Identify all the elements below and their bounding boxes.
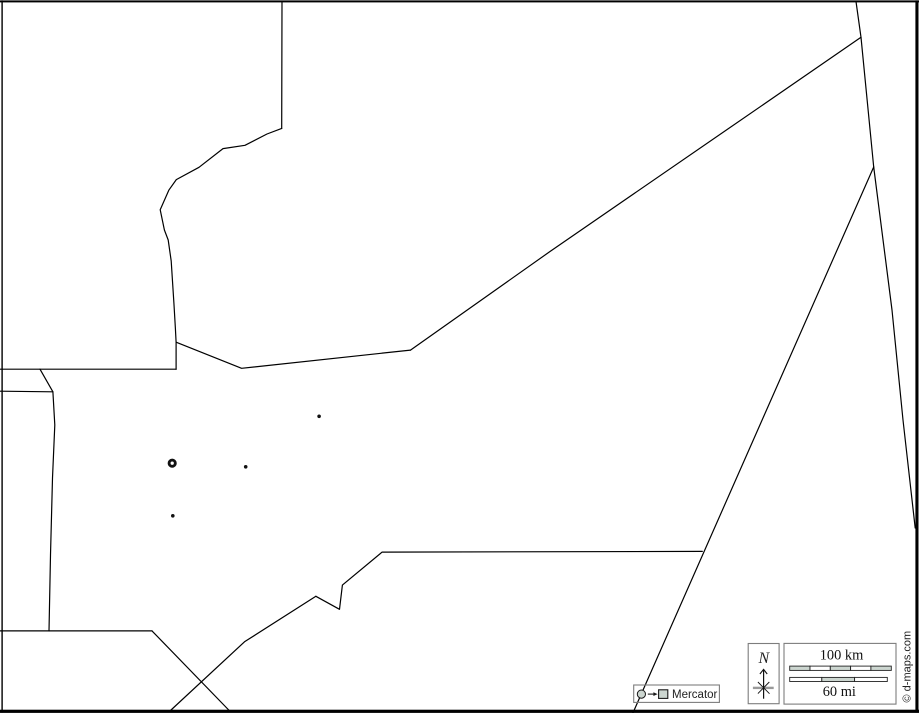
svg-text:Mercator: Mercator: [672, 689, 718, 701]
svg-text:N: N: [757, 650, 770, 667]
svg-text:© d-maps.com: © d-maps.com: [902, 631, 914, 703]
svg-text:100 km: 100 km: [820, 648, 864, 664]
svg-text:60 mi: 60 mi: [823, 684, 856, 700]
